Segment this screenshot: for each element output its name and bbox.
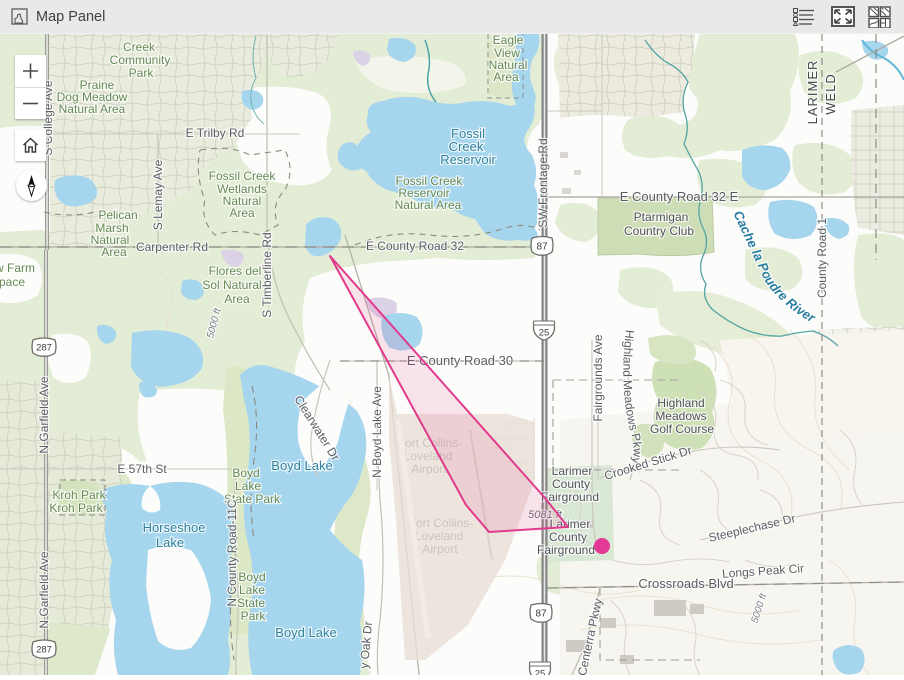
- svg-text:County Road 1: County Road 1: [815, 218, 829, 298]
- svg-text:Park: Park: [241, 609, 267, 623]
- svg-text:87: 87: [535, 609, 547, 620]
- svg-text:Boyd Lake: Boyd Lake: [271, 458, 332, 473]
- svg-text:287: 287: [36, 645, 52, 656]
- svg-text:Pelican: Pelican: [98, 208, 137, 222]
- svg-text:Area: Area: [229, 206, 255, 220]
- svg-text:Lake: Lake: [239, 583, 265, 597]
- svg-text:E Trilby Rd: E Trilby Rd: [186, 126, 245, 140]
- svg-text:WELD: WELD: [823, 73, 838, 115]
- svg-text:LARIMER: LARIMER: [805, 60, 820, 125]
- svg-text:Boyd Lake: Boyd Lake: [275, 625, 336, 640]
- svg-text:Area: Area: [224, 292, 250, 306]
- svg-text:Lake: Lake: [235, 479, 261, 493]
- svg-text:E 57th St: E 57th St: [117, 462, 167, 476]
- svg-text:Creek: Creek: [123, 40, 156, 54]
- svg-text:Meadows: Meadows: [655, 409, 706, 423]
- svg-text:Sol Natural: Sol Natural: [202, 278, 261, 292]
- svg-text:Lake: Lake: [156, 535, 184, 550]
- svg-text:S Lemay Ave: S Lemay Ave: [151, 159, 165, 230]
- svg-text:Golf Course: Golf Course: [650, 422, 714, 436]
- svg-text:pace: pace: [0, 275, 25, 289]
- svg-text:w Farm: w Farm: [0, 261, 35, 275]
- svg-text:N Garfield Ave: N Garfield Ave: [37, 376, 51, 453]
- svg-text:N Garfield Ave: N Garfield Ave: [37, 551, 51, 628]
- svg-text:Crossroads Blvd: Crossroads Blvd: [638, 576, 733, 591]
- svg-text:Carpenter Rd: Carpenter Rd: [136, 240, 208, 254]
- svg-text:State: State: [237, 596, 265, 610]
- svg-text:Fairgrounds Ave: Fairgrounds Ave: [591, 334, 605, 421]
- svg-text:N County Road-11C: N County Road-11C: [225, 499, 239, 606]
- svg-text:Larimer: Larimer: [552, 464, 593, 478]
- svg-text:Reservoir: Reservoir: [440, 152, 496, 167]
- svg-text:Area: Area: [101, 245, 127, 259]
- svg-text:87: 87: [536, 242, 548, 253]
- svg-text:Area: Area: [493, 70, 519, 84]
- svg-text:E County Road 32 E: E County Road 32 E: [620, 189, 739, 204]
- svg-text:Natural Area: Natural Area: [59, 102, 126, 116]
- svg-text:S Timberline Rd: S Timberline Rd: [260, 232, 274, 317]
- svg-text:Park: Park: [129, 66, 155, 80]
- svg-text:25: 25: [535, 669, 546, 676]
- svg-text:Ptarmigan: Ptarmigan: [634, 210, 689, 224]
- svg-text:Fairground: Fairground: [541, 490, 599, 504]
- svg-text:Natural Area: Natural Area: [395, 198, 462, 212]
- svg-text:Kroh Park: Kroh Park: [52, 488, 106, 502]
- svg-text:Country Club: Country Club: [624, 224, 694, 238]
- svg-text:Kroh Park: Kroh Park: [49, 501, 103, 515]
- svg-text:SW Frontage Rd: SW Frontage Rd: [536, 138, 550, 227]
- svg-text:Fossil Creek: Fossil Creek: [209, 169, 277, 183]
- svg-text:E County Road 32: E County Road 32: [366, 239, 464, 253]
- svg-text:Fairground: Fairground: [537, 543, 595, 557]
- svg-text:25: 25: [539, 328, 550, 339]
- svg-text:Horseshoe: Horseshoe: [143, 520, 206, 535]
- svg-text:Flores del: Flores del: [209, 264, 262, 278]
- svg-text:County: County: [552, 477, 590, 491]
- svg-text:N Boyd Lake Ave: N Boyd Lake Ave: [370, 386, 384, 478]
- svg-text:County: County: [549, 530, 587, 544]
- svg-text:Boyd: Boyd: [232, 466, 259, 480]
- svg-text:Highland: Highland: [657, 396, 704, 410]
- svg-text:287: 287: [36, 343, 52, 354]
- svg-text:Community: Community: [110, 53, 171, 67]
- svg-text:Boyd: Boyd: [238, 570, 265, 584]
